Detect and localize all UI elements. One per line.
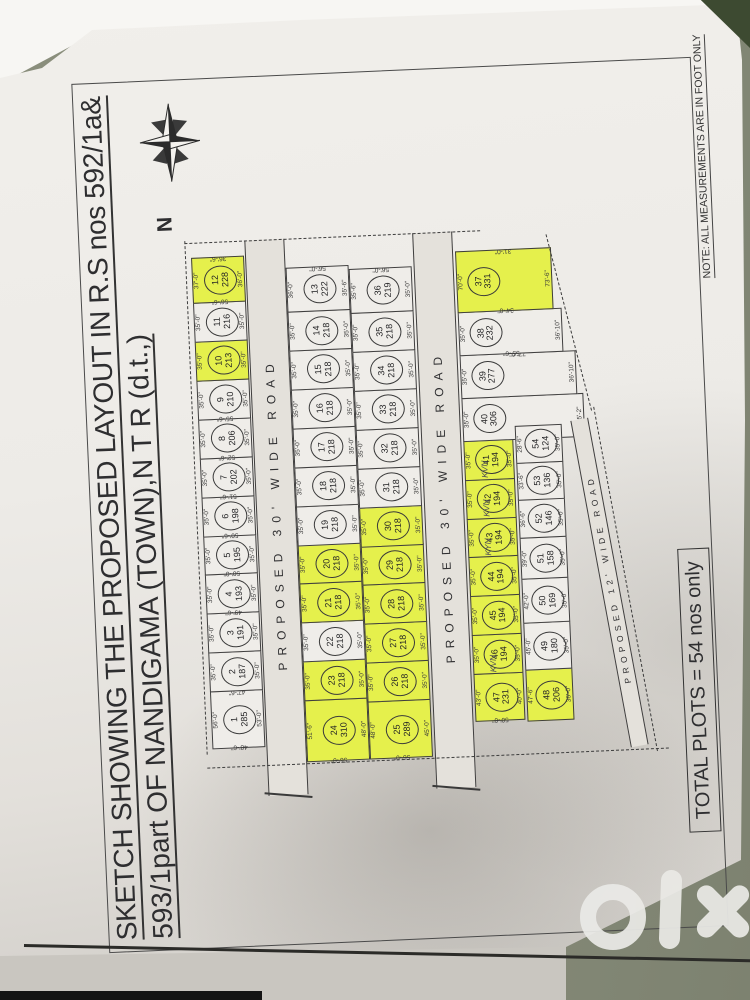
- dimension-label: 35'-6": [350, 270, 359, 313]
- handwritten-note: KVN: [488, 655, 499, 673]
- dimension-label: 51'-6": [305, 701, 315, 761]
- plot-area: 213: [224, 353, 234, 368]
- plot-area: 228: [220, 272, 230, 287]
- dimension-label: 35'-0": [407, 350, 416, 388]
- compass-rose-icon: [124, 88, 224, 212]
- dimension-label: 36'-6": [519, 500, 528, 538]
- plot-cell: 35'-0"35'-0"2187: [208, 650, 263, 692]
- plot-id-circle: 28218: [380, 588, 414, 618]
- dimension-label: 35'-0": [204, 537, 213, 575]
- dimension-label: 55'-6": [216, 414, 233, 422]
- plot-cell: 56'-0"53'-0"48'-6"47'-6"1285: [210, 689, 265, 749]
- olx-x-icon: [690, 878, 750, 944]
- plot-cell: 35'-0"35'-0"21218: [299, 581, 364, 624]
- dimension-label: 50'-0": [492, 716, 509, 724]
- plot-cell: 70'-0"73'-6"34'-0"31'-0"37331: [455, 247, 554, 313]
- plot-id-circle: 12228: [203, 265, 237, 295]
- plot-id-circle: 1285: [223, 704, 257, 734]
- plot-cell: 35'-6"35'-0"56'-0"36219: [349, 266, 414, 314]
- dimension-label: 37'-0": [192, 259, 201, 303]
- plot-cell: 35'-0"35'-0"KYN43194: [467, 516, 519, 558]
- plot-area: 218: [321, 322, 331, 337]
- plot-area: 331: [483, 273, 493, 288]
- dimension-label: 48'-6": [230, 743, 247, 751]
- plot-id-circle: 34218: [369, 355, 403, 385]
- plot-id-circle: 51158: [529, 543, 563, 573]
- plot-id-circle: 4193: [217, 578, 251, 608]
- dimension-label: 35'-0": [302, 623, 311, 661]
- dimension-label: 36'-10": [567, 351, 576, 393]
- plot-area: 202: [229, 469, 239, 484]
- dimension-label: 35'-0": [290, 351, 299, 389]
- dimension-label: 35'-0": [505, 440, 514, 478]
- plot-area: 310: [339, 722, 349, 737]
- dimension-label: 35'-0": [557, 498, 566, 536]
- dimension-label: 51'-6": [220, 492, 237, 500]
- plot-cell: 39'-0"35'-0"51158: [520, 536, 569, 580]
- dimension-label: 35'-0": [509, 517, 518, 555]
- dimension-label: 35'-0": [206, 576, 215, 614]
- dimension-label: 35'-0": [357, 430, 366, 468]
- plot-area: 219: [383, 282, 393, 297]
- plot-cell: 35'-0"35'-0"KVN46194: [472, 633, 524, 675]
- plot-cell: 43'-0"40'-0"50'-0"47231: [473, 672, 525, 722]
- plot-area: 194: [498, 607, 508, 622]
- dimension-label: 35'-0": [240, 340, 249, 378]
- plot-area: 158: [546, 550, 556, 565]
- plot-id-circle: 45194: [481, 600, 515, 630]
- dimension-label: 35'-0": [473, 636, 482, 674]
- plot-cell: 35'-0"35'-0"27218: [364, 621, 429, 664]
- plot-id-circle: 47231: [484, 682, 518, 712]
- dimension-label: 45'-0": [423, 700, 432, 756]
- plot-cell: 48'-0"45'-0"56'-0"25289: [368, 699, 433, 760]
- plot-area: 218: [398, 635, 408, 650]
- plot-area: 187: [237, 664, 247, 679]
- dimension-label: 35'-0": [209, 653, 218, 691]
- dimension-label: 35'-0": [238, 302, 247, 340]
- plot-cell: 36'-0"35'-6"56'-0"13222: [286, 265, 351, 313]
- plot-area: 222: [320, 281, 330, 296]
- dimension-label: 35'-0": [461, 356, 470, 398]
- dimension-label: 35'-0": [294, 429, 303, 467]
- plot-area: 218: [330, 517, 340, 532]
- dimension-label: 35'-0": [416, 545, 425, 583]
- dimension-label: 56'-0": [211, 692, 220, 748]
- dimension-label: 35'-0": [514, 634, 523, 672]
- plot-area: 193: [234, 586, 244, 601]
- plot-id-circle: 26218: [383, 666, 417, 696]
- dimension-label: 35'-0": [355, 391, 364, 429]
- plot-id-circle: 10213: [207, 345, 241, 375]
- plot-cell: 35'-0"35'-0"44194: [468, 555, 520, 597]
- plot-area: 218: [393, 518, 403, 533]
- olx-o-icon: [580, 884, 646, 950]
- plot-area: 146: [544, 510, 554, 525]
- plot-area: 218: [390, 440, 400, 455]
- dimension-label: 35'-0": [466, 480, 475, 518]
- plot-id-circle: 3191: [219, 617, 253, 647]
- plot-id-circle: 20218: [315, 548, 349, 578]
- plot-cell: 51'-6"48'-0"56'-0"24310: [304, 698, 370, 763]
- plot-cell: 42'-0"35'-0"50169: [521, 577, 570, 624]
- dimension-label: 35'-0": [353, 353, 362, 391]
- dimension-label: 28'-6": [516, 426, 525, 462]
- plot-id-circle: 11216: [205, 306, 239, 336]
- plot-area: 218: [337, 672, 347, 687]
- dimension-label: 53'-0": [255, 690, 264, 746]
- dimension-label: 35'-0": [364, 586, 373, 624]
- dimension-label: 35'-0": [471, 597, 480, 635]
- plot-id-circle: 25289: [385, 714, 419, 744]
- dimension-label: 35'-0": [245, 457, 254, 495]
- plot-id-circle: 30218: [376, 511, 410, 541]
- dimension-label: 35'-0": [469, 558, 478, 596]
- plot-id-circle: 5195: [215, 540, 249, 570]
- plot-id-circle: 14218: [305, 315, 339, 345]
- plot-id-circle: 39277: [470, 361, 504, 391]
- plot-id-circle: 13222: [303, 274, 337, 304]
- dimension-label: 34'-0": [497, 306, 514, 314]
- plot-cell: 35'-0"35'-0"15218: [289, 348, 354, 391]
- plot-area: 231: [501, 689, 511, 704]
- road-label: PROPOSED 30' WIDE ROAD: [430, 350, 458, 671]
- plot-id-circle: 32218: [373, 433, 407, 463]
- dimension-label: 36'-10": [554, 309, 563, 351]
- plot-id-circle: 2187: [220, 656, 254, 686]
- plot-id-circle: 40306: [472, 404, 506, 434]
- dimension-label: 35'-0": [414, 506, 423, 544]
- dimension-label: 35'-0": [243, 418, 252, 456]
- dimension-label: 39'-0": [521, 539, 530, 579]
- plot-id-circle: 44194: [479, 561, 513, 591]
- plot-area: 169: [547, 593, 557, 608]
- dimension-label: 35'-0": [512, 595, 521, 633]
- dimension-label: 35'-0": [409, 389, 418, 427]
- dimension-label: 35'-0": [362, 547, 371, 585]
- dimension-label: 31'-0": [495, 247, 512, 255]
- plot-cell: 35'-0"35'-0"55'-6"9210: [196, 378, 251, 420]
- plot-cell: 35'-0"35'-0"30218: [359, 505, 424, 548]
- plot-id-circle: 22218: [318, 626, 352, 656]
- plot-cell: 35'-0"35'-0"52'-6"8206: [198, 417, 253, 459]
- dimension-label: 55'-6": [503, 349, 520, 357]
- plot-cell: 35'-0"35'-0"28218: [362, 582, 427, 625]
- plot-cell: 37'-0"36'-0"56'-6"36'-6"12228: [191, 256, 246, 304]
- plot-area: 198: [230, 508, 240, 523]
- dimension-label: 35'-0": [199, 420, 208, 458]
- plot-id-circle: 8206: [210, 423, 244, 453]
- plot-id-circle: 49180: [533, 631, 567, 661]
- dimension-label: 35'-0": [555, 461, 564, 497]
- plot-area: 218: [388, 401, 398, 416]
- dimension-label: 35'-0": [360, 508, 369, 546]
- dimension-label: 35'-0": [201, 459, 210, 497]
- dimension-label: 36'-6": [209, 254, 226, 262]
- plot-area: 218: [328, 478, 338, 493]
- dimension-label: 35'-0": [459, 313, 468, 355]
- dimension-label: 35'-0": [358, 469, 367, 507]
- plot-cell: 35'-0"35'-0"49'-6"4193: [205, 573, 260, 615]
- plot-cell: 35'-0"35'-0"23218: [303, 659, 368, 702]
- plot-cell: 35'-0"35'-0"KVN42194: [465, 478, 517, 520]
- plot-cell: 35'-0"36'-10"77'-0"39277: [460, 350, 578, 399]
- plot-area: 218: [325, 400, 335, 415]
- plot-cell: 35'-0"35'-0"35218: [351, 310, 416, 353]
- plot-cell: 33'-6"35'-0"53136: [516, 460, 565, 500]
- plot-area: 277: [487, 368, 497, 383]
- plot-cell: 35'-0"35'-0"26218: [366, 660, 431, 703]
- dimension-label: 35'-0": [421, 661, 430, 699]
- dimension-label: 35'-0": [462, 399, 471, 441]
- plot-area: 194: [496, 568, 506, 583]
- plot-area: 194: [492, 491, 502, 506]
- dimension-label: 35'-0": [560, 578, 569, 621]
- dimension-label: 35'-0": [419, 622, 428, 660]
- olx-bar-icon: [659, 870, 683, 950]
- dimension-label: 36'-0": [564, 669, 573, 719]
- plot-area: 218: [385, 324, 395, 339]
- plot-id-circle: 33218: [371, 394, 405, 424]
- plot-id-circle: 53136: [525, 465, 559, 495]
- layout-drawing: SKETCH SHOWING THE PROPOSED LAYOUT IN R.…: [71, 57, 728, 953]
- dimension-label: 35'-0": [406, 311, 415, 349]
- dimension-label: 35'-0": [297, 507, 306, 545]
- plot-id-circle: 54124: [524, 428, 558, 458]
- dimension-label: 35'-0": [562, 622, 571, 668]
- plot-area: 206: [552, 687, 562, 702]
- plot-area: 194: [494, 529, 504, 544]
- plot-area: 218: [327, 439, 337, 454]
- dimension-label: 35'-0": [352, 314, 361, 352]
- plot-cell: 35'-0"35'-0"32218: [356, 427, 421, 470]
- plot-area: 218: [332, 556, 342, 571]
- dimension-label: 35'-0": [289, 312, 298, 350]
- plot-area: 218: [335, 633, 345, 648]
- plot-id-circle: 9210: [209, 384, 243, 414]
- plot-area: 218: [323, 361, 333, 376]
- plot-cell: 35'-0"35'-0"20218: [298, 542, 363, 585]
- plot-area: 194: [499, 646, 509, 661]
- plot-cell: 35'-0"35'-0"50'-6"6198: [201, 495, 256, 537]
- plot-area: 124: [541, 436, 551, 451]
- plot-id-circle: 35218: [368, 316, 402, 346]
- dimension-label: 35'-0": [203, 498, 212, 536]
- dimension-label: 35'-0": [196, 342, 205, 380]
- plot-area: 218: [391, 479, 401, 494]
- dimension-label: 33'-6": [517, 463, 526, 499]
- plot-id-circle: 17218: [310, 432, 344, 462]
- plot-cell: 35'-0"35'-0"34218: [352, 349, 417, 392]
- plot-id-circle: 15218: [306, 354, 340, 384]
- plot-area: 218: [386, 362, 396, 377]
- north-label: N: [153, 216, 178, 232]
- plot-id-circle: 38232: [468, 318, 502, 348]
- plot-id-circle: 24310: [322, 715, 356, 745]
- dimension-label: 35'-0": [299, 546, 308, 584]
- road-label: PROPOSED 30' WIDE ROAD: [262, 357, 290, 678]
- dimension-label: 49'-6": [225, 609, 242, 617]
- handwritten-note: KYN: [483, 538, 494, 556]
- dimension-label: 35'-0": [253, 651, 262, 689]
- plot-id-circle: 37331: [466, 266, 500, 296]
- dimension-label: 35'-0": [412, 467, 421, 505]
- dimension-label: 35'-0": [241, 379, 250, 417]
- plot-area: 210: [225, 391, 235, 406]
- plot-id-circle: 27218: [381, 627, 415, 657]
- plot-id-circle: 7202: [212, 462, 246, 492]
- plot-cell: 35'-0"35'-0"11216: [193, 301, 248, 343]
- dimension-label: 35'-0": [194, 304, 203, 342]
- plot-area: 195: [232, 547, 242, 562]
- plot-cell: 35'-0"35'-0"51'-6"7202: [200, 456, 255, 498]
- dimension-label: 35'-0": [248, 535, 257, 573]
- dimension-label: 36'-0": [287, 269, 296, 312]
- handwritten-note: KVN: [480, 460, 491, 478]
- dimension-label: 35'-0": [250, 574, 259, 612]
- dimension-label: 35'-0": [295, 468, 304, 506]
- plot-area: 136: [542, 472, 552, 487]
- plot-id-circle: 19218: [313, 509, 347, 539]
- dimension-label: 35'-0": [464, 441, 473, 479]
- plot-cell: 35'-0"35'-0"18218: [294, 464, 359, 507]
- plot-area: 289: [402, 721, 412, 736]
- dimension-label: 35'-0": [300, 584, 309, 622]
- dimension-label: 35'-0": [367, 663, 376, 701]
- plot-cell: 35'-0"35'-0"14218: [287, 309, 352, 352]
- plot-area: 216: [222, 314, 232, 329]
- plot-cell: 35'-0"35'-0"50'-0"5195: [203, 534, 258, 576]
- dimension-label: 52'-6": [218, 453, 235, 461]
- dimension-label: 42'-0": [522, 580, 531, 623]
- plot-cell: 35'-0"36'-10"55'-6"38232: [458, 308, 564, 356]
- plot-area: 194: [491, 452, 501, 467]
- plot-cell: 35'-0"35'-0"19218: [296, 503, 361, 546]
- dimension-label: 45'-0": [524, 624, 533, 670]
- dimension-label: 35'-0": [246, 496, 255, 534]
- plot-area: 218: [400, 673, 410, 688]
- plot-id-circle: 18218: [311, 471, 345, 501]
- dimension-label: 36'-0": [236, 257, 245, 301]
- dimension-label: 70'-0": [456, 252, 466, 312]
- plot-area: 218: [396, 596, 406, 611]
- dimension-label: 35'-0": [411, 428, 420, 466]
- plot-id-circle: 21218: [317, 587, 351, 617]
- dimension-label: 35'-0": [468, 519, 477, 557]
- dimension-label: 35'-0": [304, 662, 313, 700]
- dimension-label: 47'-6": [526, 670, 535, 720]
- dimension-label: 35'-0": [559, 537, 568, 577]
- dimension-label: 50'-0": [223, 570, 240, 578]
- dimension-label: 35'-0": [510, 556, 519, 594]
- plot-area: 206: [227, 430, 237, 445]
- plot-id-circle: 29218: [378, 550, 412, 580]
- plot-area: 218: [395, 557, 405, 572]
- dimension-label: 56'-0": [372, 265, 389, 273]
- dark-surface-strip: [0, 991, 262, 1000]
- dimension-label: 35'-0": [404, 267, 413, 310]
- dimension-label: 35'-0": [365, 625, 374, 663]
- olx-watermark: [572, 862, 750, 957]
- dimension-label: 35'-0": [417, 583, 426, 621]
- plot-cell: 35'-0"35'-0"45194: [470, 594, 522, 636]
- plot-id-circle: 52146: [527, 503, 561, 533]
- plot-id-circle: 50169: [531, 585, 565, 615]
- plot-cell: 28'-6"35'-0"54124: [515, 424, 564, 464]
- plot-cell: 35'-0"35'-0"10213: [195, 339, 250, 381]
- plot-cell: 47'-6"36'-0"48206: [525, 668, 574, 722]
- plot-area: 306: [489, 411, 499, 426]
- dimension-label: 56'-0": [309, 264, 326, 272]
- plot-cell: 35'-0"35'-0"16218: [291, 387, 356, 430]
- dimension-label: 48'-0": [369, 702, 378, 758]
- dimension-label: 35'-0": [197, 381, 206, 419]
- dimension-label: 43'-0": [474, 675, 483, 721]
- plot-cell: 35'-0"35'-0"31218: [357, 466, 422, 509]
- photo-background: SKETCH SHOWING THE PROPOSED LAYOUT IN R.…: [0, 0, 750, 1000]
- dimension-label: 35'-0": [507, 479, 516, 517]
- plot-cell: 36'-6"35'-0"52146: [518, 497, 567, 539]
- plot-area: 191: [236, 625, 246, 640]
- plot-cell: 35'-0"35'-0"22218: [301, 620, 366, 663]
- dimension-label: 40'-0": [515, 673, 524, 719]
- dimension-label: 35'-0": [208, 614, 217, 652]
- plot-area: 180: [549, 638, 559, 653]
- plot-id-circle: 6198: [214, 501, 248, 531]
- dimension-label: 35'-0": [292, 390, 301, 428]
- plot-area: 232: [485, 325, 495, 340]
- plot-id-circle: 31218: [375, 472, 409, 502]
- plot-cell: 35'-0"35'-0"33218: [354, 388, 419, 431]
- plot-area: 218: [333, 594, 343, 609]
- plot-cell: 35'-0"35'-0"KVN41194: [463, 439, 515, 481]
- plot-cell: 35'-0"35'-0"29218: [361, 543, 426, 586]
- dimension-label: 35'-0": [252, 613, 261, 651]
- handwritten-note: KVN: [481, 499, 492, 517]
- plot-id-circle: 48206: [535, 679, 569, 709]
- plot-cell: 45'-0"35'-0"49180: [523, 621, 572, 671]
- plot-cell: 35'-0"35'-0"17218: [293, 426, 358, 469]
- dimension-label: 56'-6": [211, 298, 228, 306]
- plot-id-circle: 16218: [308, 393, 342, 423]
- plot-area: 285: [239, 711, 249, 726]
- plot-id-circle: 23218: [320, 665, 354, 695]
- dimension-label: 35'-0": [554, 425, 563, 461]
- plot-id-circle: 36219: [366, 275, 400, 305]
- dimension-label: 50'-6": [221, 531, 238, 539]
- plot-cell: 35'-0"35'-0"3191: [207, 612, 262, 654]
